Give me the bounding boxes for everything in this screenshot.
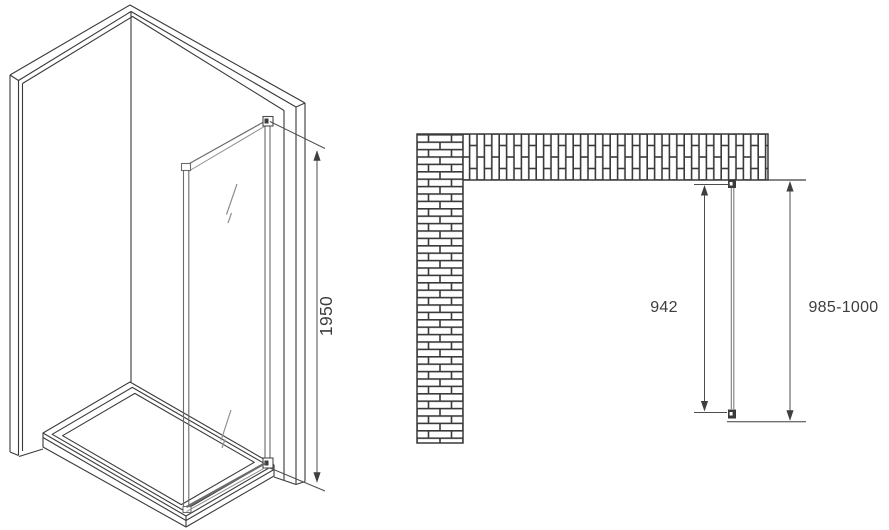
plan-view: 942 985-1000	[417, 134, 879, 443]
masonry-outline	[417, 134, 768, 443]
glass-panel-plan	[727, 180, 806, 422]
panel-width-arrow-up-icon	[701, 185, 708, 196]
wall-bracket-top-plan-slot	[730, 182, 733, 186]
dimension-panel-width: 942	[650, 185, 730, 413]
height-arrow-up-icon	[313, 150, 320, 161]
shower-tray	[43, 382, 274, 527]
dimension-height: 1950	[270, 122, 336, 492]
overall-width-arrow-up-icon	[786, 181, 793, 192]
wall-bracket-top-iso-knob	[265, 119, 269, 124]
overall-width-label: 985-1000	[808, 299, 878, 316]
right-wall-edges	[284, 103, 305, 485]
overall-width-arrow-down-icon	[786, 410, 793, 421]
masonry-walls	[417, 134, 806, 443]
height-label: 1950	[316, 296, 336, 336]
wall-top-outer-edge	[10, 5, 305, 103]
left-wall-edges	[10, 75, 23, 456]
glass-reflection-upper	[227, 184, 238, 223]
glass-top-inner-edge	[189, 126, 266, 172]
masonry-wall-horizontal	[463, 134, 768, 180]
glass-plan-lines	[731, 187, 734, 409]
glass-left-profile-cap	[182, 164, 191, 171]
panel-width-arrow-down-icon	[701, 401, 708, 412]
glass-right-profile	[265, 120, 270, 461]
technical-drawing-page: 1950 942	[0, 0, 889, 530]
side-view: 1950	[10, 5, 336, 527]
dimension-overall-width: 985-1000	[786, 181, 878, 421]
panel-width-label: 942	[650, 299, 678, 316]
height-arrow-down-icon	[313, 472, 320, 483]
shower-enclosure-diagram: 1950 942	[0, 0, 889, 530]
panel-width-extension-lines	[694, 185, 730, 413]
wall-top-inner-edge	[23, 17, 285, 111]
wall-bracket-bottom-plan-slot	[730, 412, 733, 416]
masonry-wall-vertical	[417, 134, 463, 443]
glass-top-edge	[185, 120, 268, 167]
